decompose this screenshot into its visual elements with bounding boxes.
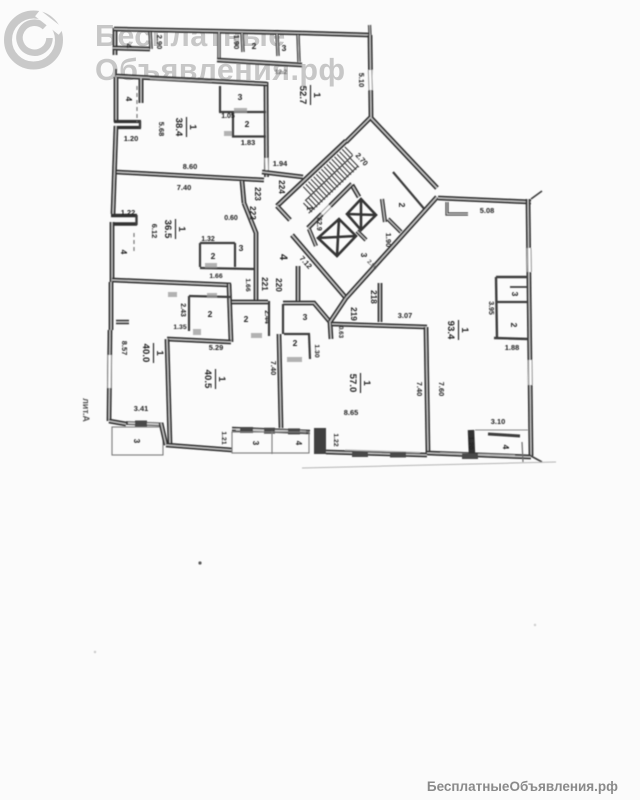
svg-text:224: 224: [277, 180, 286, 194]
svg-text:3: 3: [303, 312, 308, 322]
svg-text:1: 1: [305, 206, 315, 211]
svg-text:1.66: 1.66: [244, 278, 251, 291]
svg-text:4: 4: [294, 441, 303, 446]
svg-text:1: 1: [361, 380, 372, 386]
svg-text:5.08: 5.08: [480, 206, 494, 215]
svg-text:3: 3: [510, 292, 520, 297]
svg-text:1.22: 1.22: [332, 433, 339, 446]
svg-text:4: 4: [501, 445, 511, 450]
svg-text:3.41: 3.41: [134, 404, 148, 413]
svg-text:3.95: 3.95: [487, 301, 494, 315]
svg-text:2: 2: [293, 338, 298, 348]
svg-text:1: 1: [459, 327, 470, 333]
svg-text:2: 2: [509, 323, 519, 328]
svg-text:1.66: 1.66: [209, 273, 222, 280]
svg-text:3: 3: [359, 253, 368, 258]
svg-text:222: 222: [248, 206, 257, 220]
svg-text:3: 3: [251, 441, 260, 446]
svg-text:12.2: 12.2: [275, 69, 288, 76]
svg-text:2.90: 2.90: [155, 35, 164, 49]
svg-text:2: 2: [252, 41, 257, 51]
svg-text:3: 3: [282, 43, 287, 53]
svg-text:221: 221: [260, 277, 269, 291]
svg-text:2: 2: [244, 314, 249, 324]
svg-text:3: 3: [132, 439, 141, 444]
svg-text:40.5: 40.5: [202, 370, 213, 389]
svg-text:1.21: 1.21: [220, 431, 227, 444]
svg-text:8.57: 8.57: [120, 341, 129, 355]
svg-text:1: 1: [187, 124, 198, 130]
svg-text:0.60: 0.60: [224, 215, 238, 222]
svg-text:1.20: 1.20: [467, 436, 474, 449]
svg-text:5.29: 5.29: [209, 343, 223, 352]
svg-text:5.68: 5.68: [157, 122, 166, 136]
svg-text:7.40: 7.40: [415, 382, 424, 396]
svg-text:3: 3: [238, 92, 243, 102]
svg-text:4: 4: [119, 250, 129, 255]
svg-text:57.0: 57.0: [347, 374, 358, 393]
svg-text:218: 218: [369, 290, 378, 304]
svg-text:6.12: 6.12: [150, 224, 159, 238]
svg-text:1.90: 1.90: [232, 35, 241, 49]
svg-text:3.10: 3.10: [491, 417, 505, 426]
svg-text:3.07: 3.07: [398, 311, 412, 320]
svg-text:3: 3: [239, 243, 244, 253]
svg-text:1.35: 1.35: [173, 324, 186, 331]
svg-text:7.40: 7.40: [177, 183, 191, 192]
svg-text:8.60: 8.60: [183, 162, 197, 171]
svg-text:93.4: 93.4: [445, 321, 456, 340]
svg-text:1.88: 1.88: [505, 343, 519, 352]
svg-text:1.30: 1.30: [313, 344, 320, 357]
svg-text:62.9: 62.9: [315, 217, 322, 231]
svg-text:БесплатныеОбъявления.рф: БесплатныеОбъявления.рф: [427, 779, 618, 794]
svg-text:40.0: 40.0: [140, 344, 151, 363]
svg-text:1.83: 1.83: [241, 138, 255, 147]
svg-text:4: 4: [277, 254, 289, 261]
svg-text:5.10: 5.10: [357, 73, 366, 87]
svg-text:1.20: 1.20: [124, 134, 138, 143]
svg-text:1: 1: [311, 92, 322, 98]
svg-text:7.40: 7.40: [269, 361, 278, 375]
svg-text:8.65: 8.65: [344, 408, 358, 417]
svg-text:2: 2: [208, 309, 213, 319]
svg-text:лит.А: лит.А: [81, 398, 91, 422]
svg-text:2: 2: [397, 203, 407, 208]
svg-text:7.60: 7.60: [437, 382, 446, 396]
svg-text:4: 4: [124, 44, 134, 49]
svg-text:1.90: 1.90: [384, 233, 393, 247]
svg-text:1.22: 1.22: [121, 208, 135, 217]
svg-text:219: 219: [349, 307, 358, 321]
svg-text:220: 220: [274, 278, 283, 292]
svg-text:52.7: 52.7: [297, 86, 308, 105]
svg-text:1: 1: [154, 350, 165, 356]
svg-text:2.43: 2.43: [179, 303, 186, 317]
svg-text:38.4: 38.4: [173, 118, 184, 137]
svg-text:1: 1: [176, 226, 187, 232]
svg-text:2: 2: [245, 119, 250, 129]
svg-text:0.63: 0.63: [337, 326, 344, 339]
svg-text:223: 223: [253, 187, 262, 201]
svg-text:36.5: 36.5: [162, 220, 173, 239]
svg-text:1.94: 1.94: [273, 159, 288, 168]
svg-text:4: 4: [124, 97, 134, 102]
svg-text:2: 2: [211, 251, 216, 261]
svg-text:1.05: 1.05: [221, 113, 235, 120]
svg-text:1: 1: [216, 376, 227, 382]
